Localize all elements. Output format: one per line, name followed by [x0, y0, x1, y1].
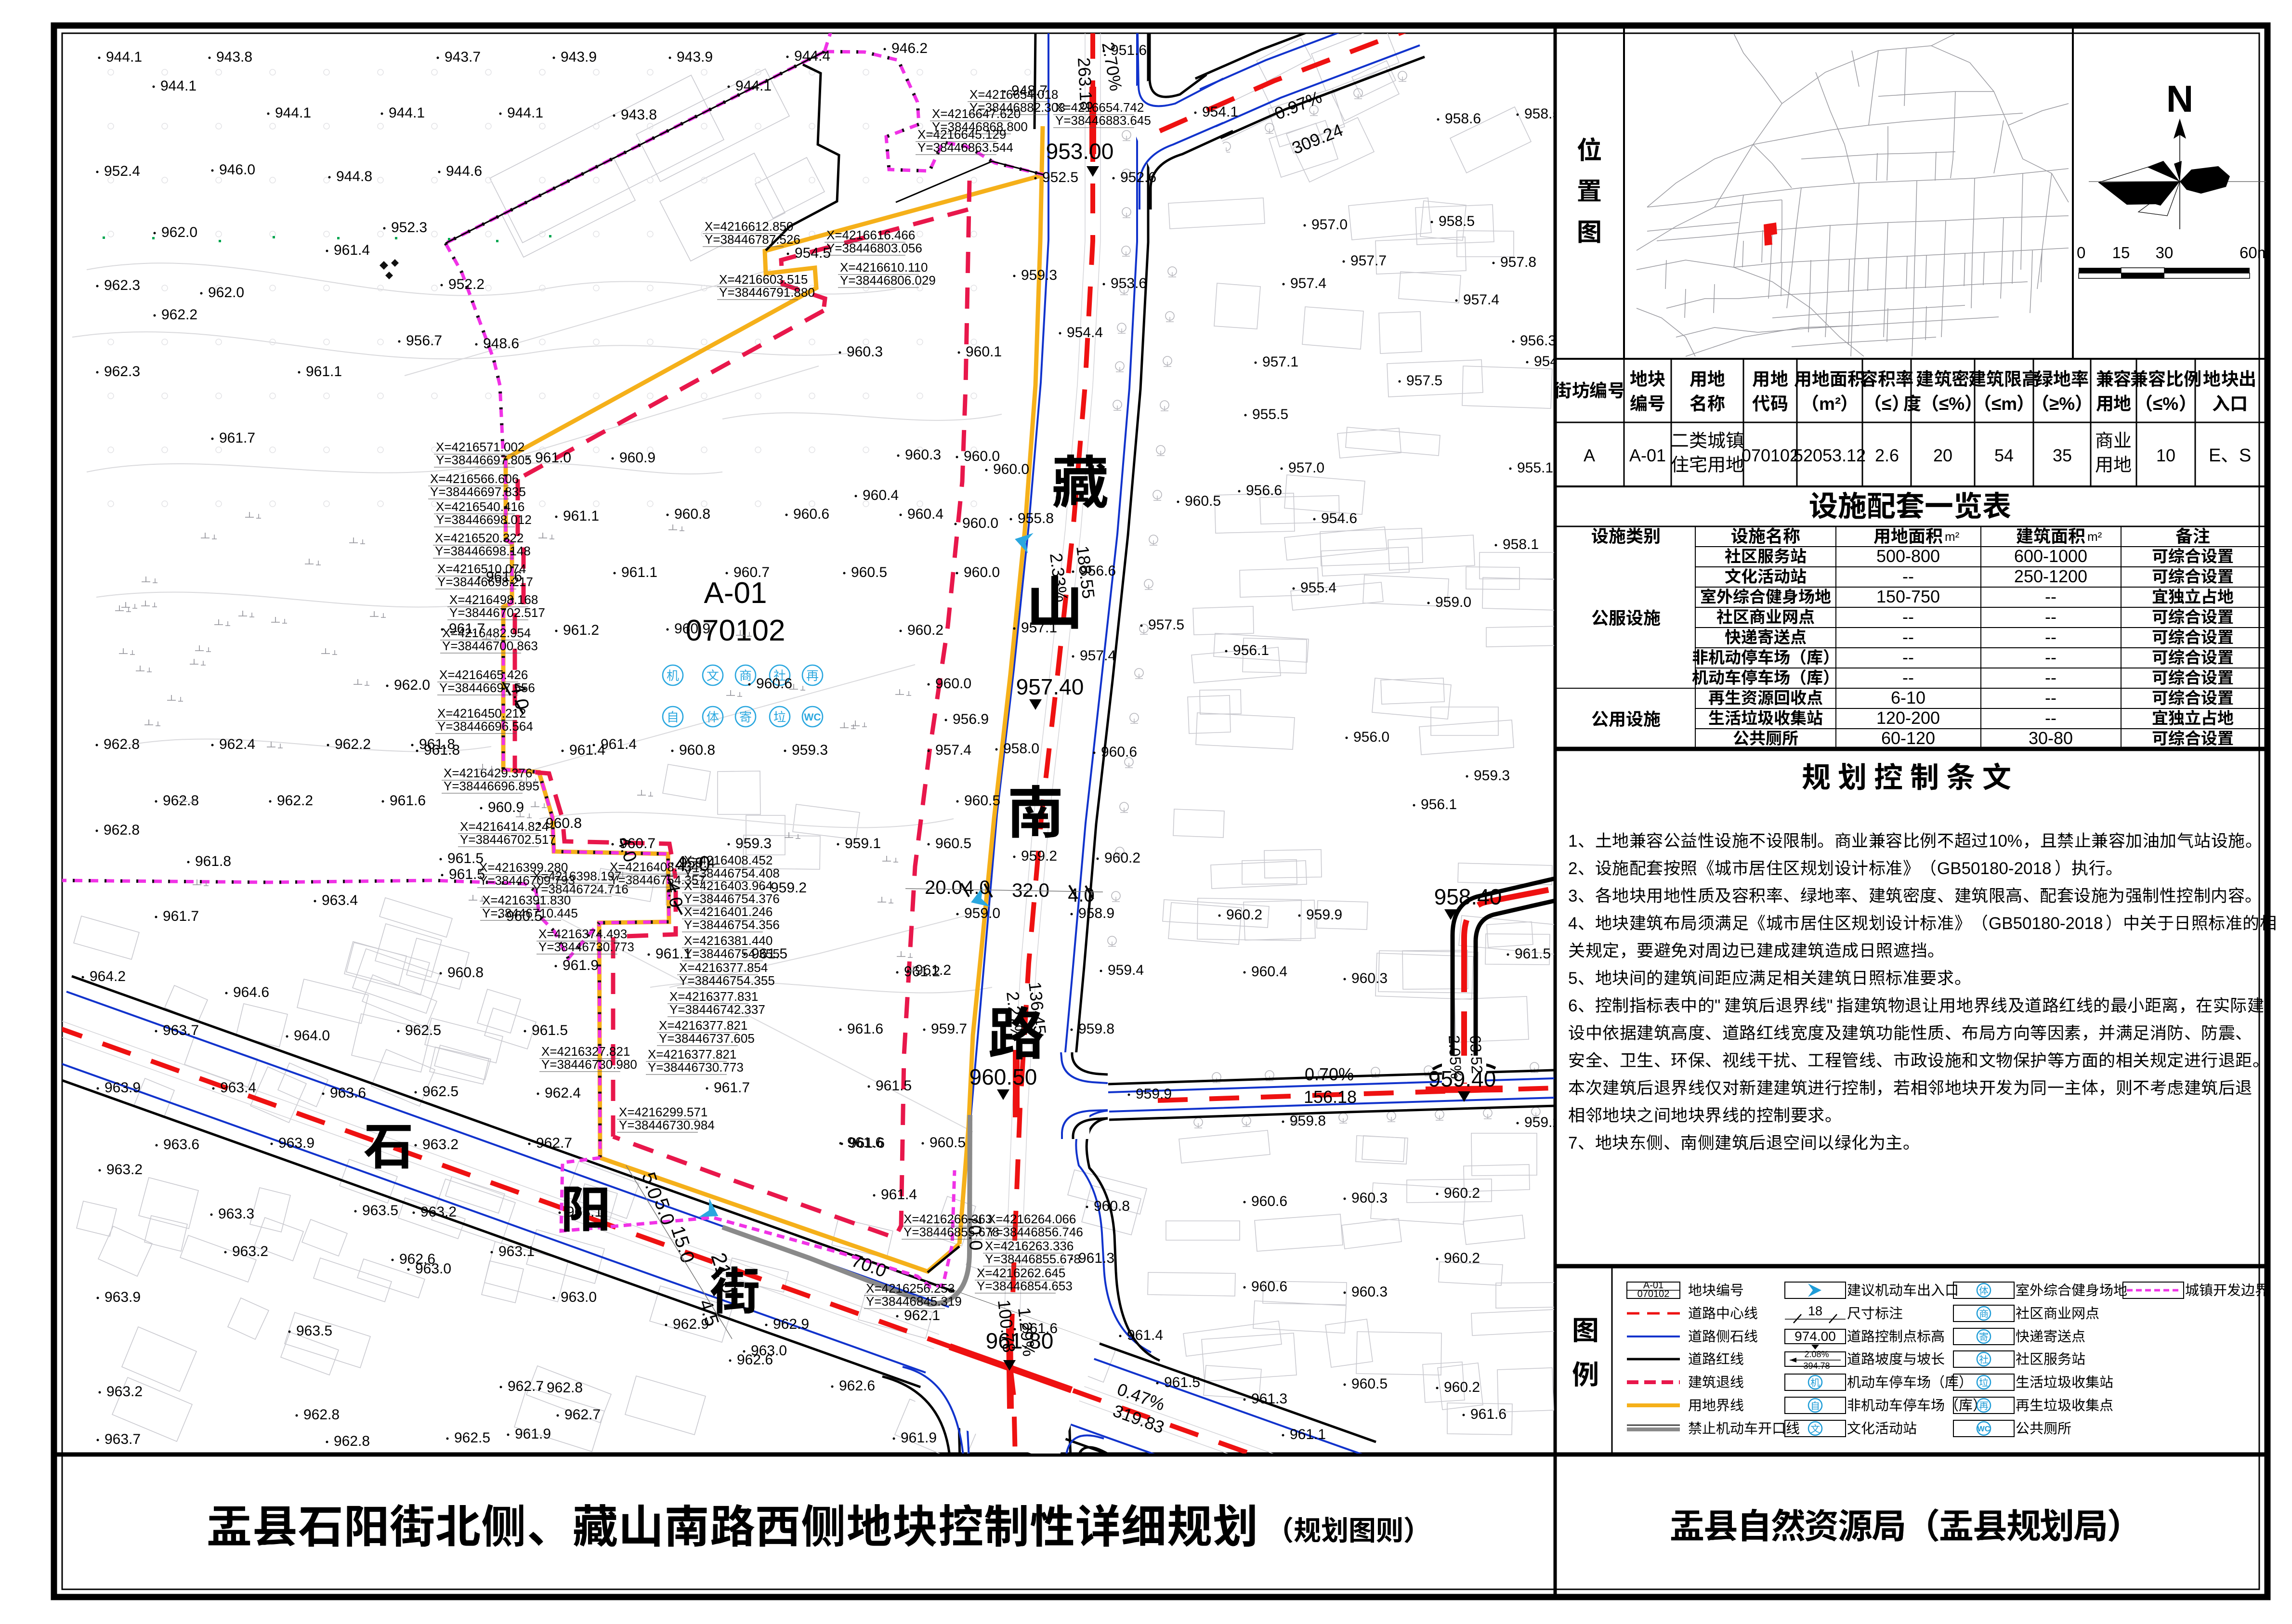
svg-text:961.5: 961.5 — [876, 1078, 912, 1094]
svg-text:955.1: 955.1 — [1517, 460, 1553, 476]
svg-text:10%: 10% — [1989, 832, 2022, 851]
svg-text:961.5: 961.5 — [447, 851, 484, 866]
svg-text:X=4216391.830: X=4216391.830 — [482, 893, 571, 907]
svg-text:962.6: 962.6 — [399, 1251, 435, 1267]
svg-text:957.5: 957.5 — [1148, 617, 1184, 633]
svg-text:959.3: 959.3 — [792, 742, 828, 758]
svg-text:961.9: 961.9 — [563, 957, 599, 973]
svg-text:X=4216612.850: X=4216612.850 — [705, 219, 793, 234]
svg-text:956.0: 956.0 — [1353, 729, 1389, 745]
svg-text:964.2: 964.2 — [90, 969, 126, 984]
svg-text:X=4216377.854: X=4216377.854 — [679, 960, 768, 975]
svg-text:2: 2 — [1568, 859, 1577, 878]
svg-text:960.5: 960.5 — [935, 836, 971, 851]
svg-text:962.2: 962.2 — [277, 793, 313, 809]
svg-text:962.6: 962.6 — [737, 1352, 773, 1368]
svg-text:X=4216571.002: X=4216571.002 — [436, 440, 524, 454]
svg-text:959.8: 959.8 — [1290, 1113, 1326, 1129]
svg-text:070102: 070102 — [1742, 445, 1799, 465]
svg-text:952.4: 952.4 — [104, 163, 140, 179]
svg-text:963.6: 963.6 — [330, 1085, 366, 1101]
svg-text:963.9: 963.9 — [278, 1135, 314, 1151]
svg-text:WC: WC — [1978, 1425, 1991, 1433]
svg-text:--: -- — [1902, 627, 1914, 647]
svg-text:961.3: 961.3 — [1251, 1391, 1287, 1407]
svg-text:309.24: 309.24 — [1289, 120, 1346, 158]
svg-text:0: 0 — [2077, 244, 2085, 262]
svg-text:961.5: 961.5 — [532, 1022, 568, 1038]
svg-text:963.5: 963.5 — [362, 1203, 398, 1218]
svg-text:960.9: 960.9 — [619, 450, 655, 466]
svg-text:959.3: 959.3 — [1021, 267, 1057, 283]
svg-text:961.3: 961.3 — [1078, 1250, 1114, 1266]
svg-text:Y=38446754.356: Y=38446754.356 — [684, 917, 780, 932]
svg-text:960.1: 960.1 — [966, 344, 1002, 360]
svg-text:956.3: 956.3 — [1520, 333, 1556, 349]
svg-text:X=4216498.168: X=4216498.168 — [449, 592, 538, 607]
svg-text:955.8: 955.8 — [1018, 511, 1054, 526]
svg-text:960.6: 960.6 — [1251, 1279, 1287, 1295]
svg-text:955.5: 955.5 — [1252, 406, 1288, 422]
svg-text:960.2: 960.2 — [1104, 850, 1140, 866]
svg-text:962.5: 962.5 — [405, 1022, 441, 1038]
svg-text:963.7: 963.7 — [163, 1022, 199, 1038]
svg-text:18: 18 — [1808, 1304, 1822, 1318]
svg-text:Y=38446730.984: Y=38446730.984 — [619, 1118, 715, 1132]
svg-text:963.4: 963.4 — [322, 892, 358, 908]
svg-text:0.97%: 0.97% — [1271, 87, 1324, 123]
svg-text:962.7: 962.7 — [536, 1135, 572, 1151]
svg-text:961.6: 961.6 — [847, 1021, 883, 1037]
svg-text:35: 35 — [2053, 445, 2072, 465]
svg-text:962.7: 962.7 — [564, 1407, 601, 1423]
svg-text:961.9: 961.9 — [515, 1426, 551, 1442]
svg-text:60m: 60m — [2240, 244, 2270, 262]
svg-text:960.6: 960.6 — [756, 676, 792, 692]
svg-text:Y=38446737.605: Y=38446737.605 — [659, 1031, 755, 1046]
svg-text:962.8: 962.8 — [163, 793, 199, 809]
svg-text:--: -- — [2045, 647, 2056, 667]
svg-text:--: -- — [1902, 566, 1914, 586]
svg-text:944.1: 944.1 — [507, 105, 543, 121]
svg-text:≤%: ≤% — [1939, 394, 1965, 414]
svg-text:X=4216429.376: X=4216429.376 — [444, 766, 532, 780]
svg-text:52053.12: 52053.12 — [1794, 445, 1866, 465]
svg-text:948.7: 948.7 — [1011, 83, 1048, 99]
svg-text:X=4216403.964: X=4216403.964 — [684, 878, 773, 893]
svg-text:--: -- — [2045, 688, 2056, 707]
svg-text:962.8: 962.8 — [104, 822, 140, 838]
svg-text:959.9: 959.9 — [1136, 1086, 1172, 1102]
svg-text:962.7: 962.7 — [508, 1378, 544, 1394]
svg-text:956.9: 956.9 — [953, 711, 989, 727]
svg-text:961.6: 961.6 — [1022, 1321, 1058, 1336]
svg-text:960.4: 960.4 — [907, 506, 943, 522]
svg-text:960.6: 960.6 — [1101, 744, 1137, 760]
svg-text:946.2: 946.2 — [891, 40, 928, 56]
svg-text:954.1: 954.1 — [1202, 104, 1238, 120]
svg-text:959.2: 959.2 — [1021, 848, 1057, 864]
svg-text:Y=38446730.980: Y=38446730.980 — [541, 1057, 637, 1072]
svg-text:956.1: 956.1 — [1233, 642, 1269, 658]
svg-text:960.6: 960.6 — [793, 506, 829, 522]
svg-text:A-01: A-01 — [704, 576, 767, 610]
svg-text:943.7: 943.7 — [445, 49, 481, 65]
svg-text:≤m: ≤m — [1991, 394, 2017, 414]
svg-text:960.50: 960.50 — [969, 1064, 1037, 1089]
svg-text:960.5: 960.5 — [930, 1135, 966, 1151]
svg-text:": " — [1827, 996, 1833, 1015]
svg-text:Y=38446730.773: Y=38446730.773 — [648, 1060, 744, 1074]
svg-text:960.8: 960.8 — [546, 815, 582, 831]
svg-text:958.6: 958.6 — [1445, 111, 1481, 127]
svg-text:Y=38446697.805: Y=38446697.805 — [436, 453, 532, 467]
svg-text:958.5: 958.5 — [1439, 213, 1475, 229]
svg-text:959.9: 959.9 — [1306, 907, 1342, 923]
svg-text:954.6: 954.6 — [1321, 511, 1357, 526]
svg-text:962.9: 962.9 — [773, 1316, 809, 1332]
svg-text:2.05%: 2.05% — [1445, 1035, 1465, 1079]
svg-text:≥%: ≥% — [2049, 394, 2075, 414]
svg-text:Y=38446854.653: Y=38446854.653 — [977, 1279, 1073, 1293]
svg-text:Y=38446883.645: Y=38446883.645 — [1055, 113, 1151, 128]
svg-text:m²: m² — [1945, 529, 1960, 544]
svg-text:963.2: 963.2 — [422, 1137, 458, 1153]
svg-text:--: -- — [2045, 627, 2056, 647]
svg-text:957.4: 957.4 — [1080, 648, 1116, 664]
svg-text:30-80: 30-80 — [2029, 728, 2073, 748]
svg-text:X=4216264.066: X=4216264.066 — [987, 1212, 1076, 1226]
svg-text:958.9: 958.9 — [1078, 905, 1114, 921]
svg-text:--: -- — [2045, 607, 2056, 627]
svg-text:X=4216616.466: X=4216616.466 — [826, 228, 915, 242]
svg-text:961.8: 961.8 — [419, 736, 455, 752]
svg-text:Y=38446845.319: Y=38446845.319 — [866, 1294, 962, 1309]
svg-text:960.8: 960.8 — [1094, 1198, 1130, 1214]
svg-text:944.1: 944.1 — [389, 105, 425, 121]
svg-text:30: 30 — [2156, 244, 2174, 262]
svg-text:960.8: 960.8 — [674, 506, 710, 522]
svg-text:--: -- — [2045, 587, 2056, 606]
svg-text:--: -- — [1902, 668, 1914, 687]
svg-text:4: 4 — [1568, 914, 1577, 933]
svg-text:961.0: 961.0 — [535, 450, 571, 466]
svg-text:944.1: 944.1 — [275, 105, 311, 121]
svg-text:≤%: ≤% — [2153, 394, 2178, 414]
svg-text:Y=38446697.556: Y=38446697.556 — [439, 681, 535, 695]
svg-text:961.1: 961.1 — [621, 564, 657, 580]
svg-text:960.9: 960.9 — [488, 799, 524, 815]
svg-text:962.0: 962.0 — [394, 677, 430, 693]
svg-text:0.70%: 0.70% — [1305, 1064, 1354, 1084]
svg-text:961.6: 961.6 — [849, 1135, 885, 1151]
svg-text:961.6: 961.6 — [486, 569, 522, 585]
svg-text:959.2: 959.2 — [771, 880, 807, 896]
svg-text:X=4216262.645: X=4216262.645 — [977, 1266, 1065, 1280]
svg-text:250-1200: 250-1200 — [2014, 566, 2087, 586]
svg-text:959.0: 959.0 — [1435, 594, 1471, 610]
svg-text:963.3: 963.3 — [218, 1206, 254, 1222]
svg-text:m²: m² — [1819, 394, 1841, 414]
svg-text:Y=38446697.835: Y=38446697.835 — [430, 485, 526, 499]
svg-text:394.78: 394.78 — [1803, 1361, 1830, 1371]
svg-text:963.2: 963.2 — [232, 1244, 268, 1259]
svg-text:954.5: 954.5 — [795, 245, 831, 261]
svg-text:961.1: 961.1 — [306, 364, 342, 380]
svg-text:X=4216401.246: X=4216401.246 — [684, 904, 773, 919]
svg-text:X=4216374.493: X=4216374.493 — [538, 927, 627, 941]
svg-text:961.4: 961.4 — [569, 742, 605, 758]
svg-text:962.2: 962.2 — [161, 307, 197, 323]
svg-text:6: 6 — [1568, 996, 1577, 1015]
svg-text:960.3: 960.3 — [1351, 970, 1388, 986]
svg-text:963.9: 963.9 — [105, 1289, 141, 1305]
svg-text:Y=38446791.880: Y=38446791.880 — [719, 285, 815, 300]
svg-text:960.8: 960.8 — [447, 965, 484, 981]
svg-text:X=4216465.426: X=4216465.426 — [439, 668, 528, 682]
svg-text:6-10: 6-10 — [1891, 688, 1925, 707]
svg-text:962.0: 962.0 — [161, 224, 197, 240]
svg-text:960.0: 960.0 — [964, 564, 1000, 580]
svg-text:960.9: 960.9 — [674, 621, 710, 637]
svg-text:m²: m² — [2087, 529, 2102, 544]
svg-text:E: E — [2209, 445, 2221, 466]
svg-text:961.4: 961.4 — [881, 1187, 917, 1203]
svg-text:953.6: 953.6 — [1111, 275, 1147, 291]
svg-text:960.0: 960.0 — [962, 515, 998, 531]
svg-text:3: 3 — [1568, 887, 1577, 905]
svg-text:944.1: 944.1 — [106, 49, 142, 65]
svg-text:960.2: 960.2 — [907, 622, 943, 638]
svg-text:964.6: 964.6 — [233, 984, 269, 1000]
svg-text:Y=38446803.056: Y=38446803.056 — [826, 241, 922, 255]
svg-text:--: -- — [2045, 708, 2056, 728]
svg-text:962.8: 962.8 — [104, 736, 140, 752]
svg-text:2.6: 2.6 — [1875, 445, 1899, 465]
svg-text:962.6: 962.6 — [839, 1378, 875, 1394]
svg-text:Y=38446855.678: Y=38446855.678 — [985, 1252, 1081, 1266]
svg-text:957.5: 957.5 — [1406, 373, 1442, 389]
svg-text:961.7: 961.7 — [449, 621, 485, 637]
svg-text:944.6: 944.6 — [446, 163, 482, 179]
svg-text:962.4: 962.4 — [219, 736, 255, 752]
svg-text:946.0: 946.0 — [219, 162, 255, 178]
svg-text:Y=38446698.012: Y=38446698.012 — [436, 512, 532, 527]
svg-text:960.3: 960.3 — [847, 344, 883, 360]
svg-text:960.3: 960.3 — [905, 447, 941, 463]
svg-text:960.2: 960.2 — [1444, 1379, 1480, 1395]
svg-text:957.4: 957.4 — [1290, 275, 1326, 291]
svg-text:X=4216414.824: X=4216414.824 — [460, 819, 549, 834]
svg-text:960.5: 960.5 — [1351, 1376, 1388, 1392]
svg-text:960.5: 960.5 — [506, 908, 542, 924]
svg-text:X=4216540.416: X=4216540.416 — [436, 499, 524, 514]
svg-text:GB50180-2018: GB50180-2018 — [1937, 859, 2051, 878]
svg-text:960.2: 960.2 — [1444, 1250, 1480, 1266]
svg-text:X=4216266.363: X=4216266.363 — [904, 1212, 992, 1226]
svg-text:944.1: 944.1 — [160, 78, 196, 94]
svg-text:956.7: 956.7 — [406, 333, 442, 349]
svg-text:952.2: 952.2 — [448, 276, 485, 292]
svg-text:962.9: 962.9 — [673, 1316, 709, 1332]
svg-text:≤: ≤ — [1882, 394, 1891, 414]
svg-text:943.8: 943.8 — [621, 107, 657, 123]
svg-text:X=4216263.336: X=4216263.336 — [985, 1239, 1074, 1253]
svg-text:5: 5 — [1568, 969, 1577, 988]
svg-text:944.1: 944.1 — [735, 78, 772, 94]
svg-text:952.5: 952.5 — [1042, 170, 1078, 185]
svg-text:Y=38446806.029: Y=38446806.029 — [840, 273, 936, 288]
svg-text:960.5: 960.5 — [964, 793, 1000, 809]
svg-text:961.1: 961.1 — [563, 508, 599, 524]
svg-text:X=4216647.620: X=4216647.620 — [932, 106, 1021, 121]
svg-text:963.0: 963.0 — [561, 1289, 597, 1305]
svg-text:Y=38446856.746: Y=38446856.746 — [987, 1225, 1083, 1239]
svg-text:X=4216654.742: X=4216654.742 — [1055, 100, 1144, 115]
svg-text:961.7: 961.7 — [219, 430, 255, 446]
svg-text:964.0: 964.0 — [294, 1028, 330, 1044]
svg-text:952.6: 952.6 — [1120, 170, 1156, 185]
svg-text:X=4216256.253: X=4216256.253 — [866, 1281, 955, 1296]
svg-text:957.40: 957.40 — [1016, 674, 1084, 699]
svg-text:954.4: 954.4 — [1067, 325, 1103, 341]
svg-text:957.1: 957.1 — [1021, 620, 1057, 636]
svg-text:Y=38446754.376: Y=38446754.376 — [684, 891, 780, 906]
svg-text:60-120: 60-120 — [1881, 728, 1935, 748]
svg-text:--: -- — [1902, 607, 1914, 627]
svg-text:120-200: 120-200 — [1876, 708, 1940, 728]
svg-text:953.00: 953.00 — [1046, 139, 1114, 164]
svg-text:960.4: 960.4 — [863, 487, 899, 503]
svg-text:Y=38446863.544: Y=38446863.544 — [917, 140, 1013, 155]
svg-text:2.08%: 2.08% — [1804, 1349, 1829, 1359]
svg-text:Y=38446696.895: Y=38446696.895 — [444, 779, 539, 793]
svg-text:961.2: 961.2 — [563, 622, 599, 638]
svg-text:962.8: 962.8 — [547, 1380, 583, 1396]
svg-text:21.0: 21.0 — [706, 1250, 741, 1297]
svg-text:X=4216566.606: X=4216566.606 — [430, 471, 519, 486]
svg-text:957.4: 957.4 — [1463, 292, 1499, 308]
svg-text:961.9: 961.9 — [901, 1430, 937, 1446]
svg-text:X=4216377.831: X=4216377.831 — [669, 989, 758, 1004]
svg-text:WC: WC — [804, 712, 821, 723]
svg-text:961.7: 961.7 — [714, 1080, 750, 1096]
svg-text:Y=38446702.517: Y=38446702.517 — [449, 605, 545, 620]
svg-text:A-01: A-01 — [1629, 445, 1666, 465]
svg-text:958.40: 958.40 — [1434, 884, 1502, 909]
svg-text:961.5: 961.5 — [1515, 946, 1551, 962]
svg-text:960.6: 960.6 — [1251, 1193, 1287, 1209]
svg-text:960.8: 960.8 — [679, 742, 715, 758]
svg-text:54: 54 — [1994, 445, 2014, 465]
svg-text:943.8: 943.8 — [216, 49, 252, 65]
svg-text:20: 20 — [1933, 445, 1952, 465]
svg-text:20.0: 20.0 — [925, 877, 962, 898]
svg-text:959.0: 959.0 — [964, 905, 1000, 921]
svg-text:1: 1 — [1568, 832, 1577, 851]
svg-text:959.4: 959.4 — [1108, 962, 1144, 978]
svg-text:961.5: 961.5 — [751, 946, 787, 962]
svg-text:X=4216377.821: X=4216377.821 — [659, 1018, 747, 1033]
svg-text:974.00: 974.00 — [1794, 1329, 1836, 1344]
svg-text:Y=38446742.337: Y=38446742.337 — [669, 1002, 765, 1017]
svg-text:962.4: 962.4 — [545, 1085, 581, 1101]
svg-text:Y=38446698.148: Y=38446698.148 — [435, 544, 531, 558]
svg-text:956.6: 956.6 — [1080, 563, 1116, 579]
svg-text:--: -- — [1902, 647, 1914, 667]
svg-text:960.3: 960.3 — [1351, 1284, 1388, 1300]
svg-text:957.1: 957.1 — [1262, 354, 1298, 370]
svg-text:961.4: 961.4 — [334, 242, 370, 258]
svg-text:2.27%: 2.27% — [1003, 991, 1027, 1042]
svg-text:962.8: 962.8 — [334, 1433, 370, 1449]
svg-text:955.4: 955.4 — [1300, 580, 1336, 596]
svg-text:944.8: 944.8 — [336, 169, 372, 184]
svg-text:961.6: 961.6 — [1470, 1406, 1506, 1422]
svg-text:962.3: 962.3 — [104, 277, 140, 293]
svg-text:963.9: 963.9 — [105, 1080, 141, 1096]
svg-text:957.0: 957.0 — [1311, 217, 1348, 233]
svg-text:600-1000: 600-1000 — [2014, 546, 2087, 566]
svg-text:958.0: 958.0 — [1003, 741, 1039, 757]
svg-text:X=4216603.515: X=4216603.515 — [719, 272, 808, 287]
svg-text:963.1: 963.1 — [498, 1244, 535, 1259]
svg-text:961.1: 961.1 — [655, 946, 692, 962]
svg-text:963.1: 963.1 — [566, 1204, 602, 1220]
svg-text:": " — [1715, 996, 1720, 1015]
svg-text:X=4216299.571: X=4216299.571 — [619, 1105, 707, 1119]
svg-text:952.3: 952.3 — [391, 220, 427, 236]
svg-text:15.0: 15.0 — [667, 1223, 698, 1266]
svg-text:959.4: 959.4 — [679, 855, 715, 871]
svg-text:GB50180-2018: GB50180-2018 — [1989, 914, 2103, 933]
svg-text:X=4216377.821: X=4216377.821 — [648, 1047, 736, 1061]
svg-text:962.5: 962.5 — [422, 1084, 458, 1100]
svg-text:963.6: 963.6 — [163, 1137, 199, 1153]
svg-text:943.9: 943.9 — [677, 49, 713, 65]
svg-text:15: 15 — [2112, 244, 2130, 262]
svg-text:Y=38446696.564: Y=38446696.564 — [437, 719, 533, 733]
svg-text:X=4216610.110: X=4216610.110 — [840, 260, 928, 275]
svg-text:961.1: 961.1 — [1290, 1427, 1326, 1442]
svg-text:963.7: 963.7 — [105, 1431, 141, 1447]
svg-text:962.5: 962.5 — [454, 1430, 490, 1446]
svg-text:948.6: 948.6 — [483, 336, 519, 352]
svg-text:961.5: 961.5 — [1164, 1375, 1200, 1390]
svg-text:962.0: 962.0 — [208, 285, 244, 301]
svg-text:150-750: 150-750 — [1876, 587, 1940, 606]
svg-text:963.2: 963.2 — [420, 1204, 457, 1220]
svg-text:963.2: 963.2 — [106, 1384, 143, 1400]
svg-text:960.5: 960.5 — [1185, 493, 1221, 509]
svg-text:962.3: 962.3 — [104, 364, 140, 380]
svg-text:Y=38446700.863: Y=38446700.863 — [442, 639, 538, 653]
svg-text:960.0: 960.0 — [964, 448, 1000, 464]
svg-text:960.2: 960.2 — [1226, 907, 1262, 923]
svg-text:959.3: 959.3 — [1474, 768, 1510, 784]
svg-text:960.7: 960.7 — [733, 564, 770, 580]
svg-text:960.2: 960.2 — [1444, 1185, 1480, 1201]
svg-text:Y=38446754.355: Y=38446754.355 — [679, 973, 775, 988]
svg-text:961.4: 961.4 — [1127, 1327, 1163, 1343]
svg-text:63.52: 63.52 — [1467, 1035, 1486, 1074]
svg-text:960.7: 960.7 — [619, 836, 655, 851]
svg-text:500-800: 500-800 — [1876, 546, 1940, 566]
svg-text:961.4: 961.4 — [601, 736, 637, 752]
svg-text:Y=38446702.517: Y=38446702.517 — [460, 832, 556, 847]
svg-text:962.1: 962.1 — [904, 1308, 940, 1323]
svg-text:963.5: 963.5 — [296, 1323, 332, 1339]
